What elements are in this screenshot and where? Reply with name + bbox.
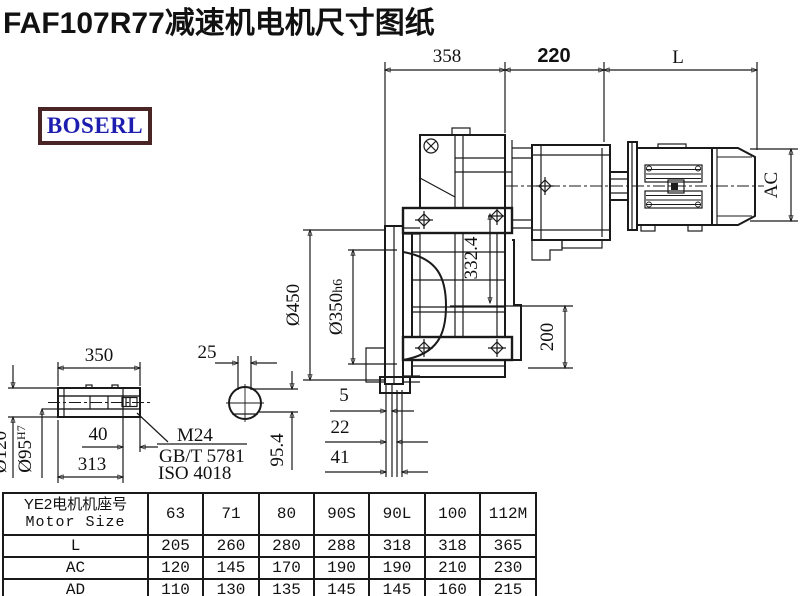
- table-header-cn: YE2电机机座号: [4, 496, 147, 514]
- table-row-L: L 205 260 280 288 318 318 365: [3, 535, 536, 557]
- col-header: 100: [425, 493, 480, 535]
- col-header: 63: [148, 493, 203, 535]
- dimension-flange-spigot: Ø350h6: [326, 250, 397, 364]
- bolt-callout: M24 GB/T 5781 ISO 4018: [137, 413, 247, 484]
- row-label: L: [3, 535, 148, 557]
- brand-logo: BOSERL: [38, 107, 152, 145]
- dim-313-label: 313: [78, 454, 107, 475]
- cell: 145: [203, 557, 259, 579]
- dim-350-label: 350: [85, 345, 114, 366]
- dimension-motor-length: L: [604, 47, 757, 150]
- dim-350h6-label: Ø350h6: [326, 279, 347, 335]
- col-header: 71: [203, 493, 259, 535]
- row-label: AC: [3, 557, 148, 579]
- dim-220-label: 220: [537, 45, 570, 67]
- cell: 280: [259, 535, 314, 557]
- cell: 145: [369, 579, 425, 596]
- dim-AC-label: AC: [761, 172, 782, 198]
- cell: 230: [480, 557, 536, 579]
- dim-L-label: L: [672, 47, 684, 68]
- bolt-symbol-top: [424, 139, 438, 153]
- dim-95-label: Ø95H7: [14, 425, 36, 472]
- page-title: FAF107R77减速机电机尺寸图纸: [3, 0, 435, 42]
- dim-95-4-label: 95.4: [267, 433, 288, 467]
- dim-332-label: 332.4: [461, 236, 482, 279]
- output-flange: [366, 226, 446, 477]
- cell: 130: [203, 579, 259, 596]
- dim-450-label: Ø450: [283, 284, 304, 326]
- cell: 120: [148, 557, 203, 579]
- cell: 288: [314, 535, 369, 557]
- cell: 215: [480, 579, 536, 596]
- cell: 260: [203, 535, 259, 557]
- hollow-shaft-detail: 350 Ø120 Ø95H7 40 313: [0, 345, 247, 484]
- cell: 210: [425, 557, 480, 579]
- col-header: 112M: [480, 493, 536, 535]
- col-header: 90S: [314, 493, 369, 535]
- cell: 205: [148, 535, 203, 557]
- cell: 110: [148, 579, 203, 596]
- col-header: 90L: [369, 493, 425, 535]
- table-row-AD: AD 110 130 135 145 145 160 215: [3, 579, 536, 596]
- dim-40-label: 40: [89, 424, 108, 445]
- cell: 190: [314, 557, 369, 579]
- row-label: AD: [3, 579, 148, 596]
- table-header-motor-size: YE2电机机座号 Motor Size: [3, 493, 148, 535]
- dim-5-label: 5: [339, 385, 349, 406]
- dimension-axis-height: 332.4: [461, 214, 490, 303]
- dimension-adapter-width: 220: [505, 45, 604, 142]
- dim-25-label: 25: [198, 342, 217, 363]
- drawing-page: 358 220 L: [0, 0, 800, 596]
- fan-cowl: [712, 148, 755, 225]
- cell: 190: [369, 557, 425, 579]
- table-row-AC: AC 120 145 170 190 190 210 230: [3, 557, 536, 579]
- cell: 160: [425, 579, 480, 596]
- dim-200-label: 200: [537, 323, 558, 352]
- dimension-face-gaps: 5 22 41: [325, 385, 428, 472]
- table-header-row: YE2电机机座号 Motor Size 63 71 80 90S 90L 100…: [3, 493, 536, 535]
- dim-22-label: 22: [331, 417, 350, 438]
- cell: 318: [425, 535, 480, 557]
- dim-358-label: 358: [433, 46, 462, 67]
- bolt-standard-iso: ISO 4018: [158, 463, 231, 484]
- brand-logo-text: BOSERL: [47, 113, 143, 139]
- motor-size-table: YE2电机机座号 Motor Size 63 71 80 90S 90L 100…: [2, 492, 537, 596]
- dimension-motor-diameter: AC: [750, 149, 798, 221]
- dim-120-label: Ø120: [0, 431, 11, 473]
- gearbox-housing: [380, 128, 521, 393]
- motor-adapter: [512, 145, 628, 260]
- bolt-label: M24: [177, 425, 213, 446]
- cell: 170: [259, 557, 314, 579]
- cell: 365: [480, 535, 536, 557]
- dim-41-label: 41: [331, 447, 350, 468]
- cell: 135: [259, 579, 314, 596]
- table-header-en: Motor Size: [4, 514, 147, 532]
- cell: 318: [369, 535, 425, 557]
- cell: 145: [314, 579, 369, 596]
- col-header: 80: [259, 493, 314, 535]
